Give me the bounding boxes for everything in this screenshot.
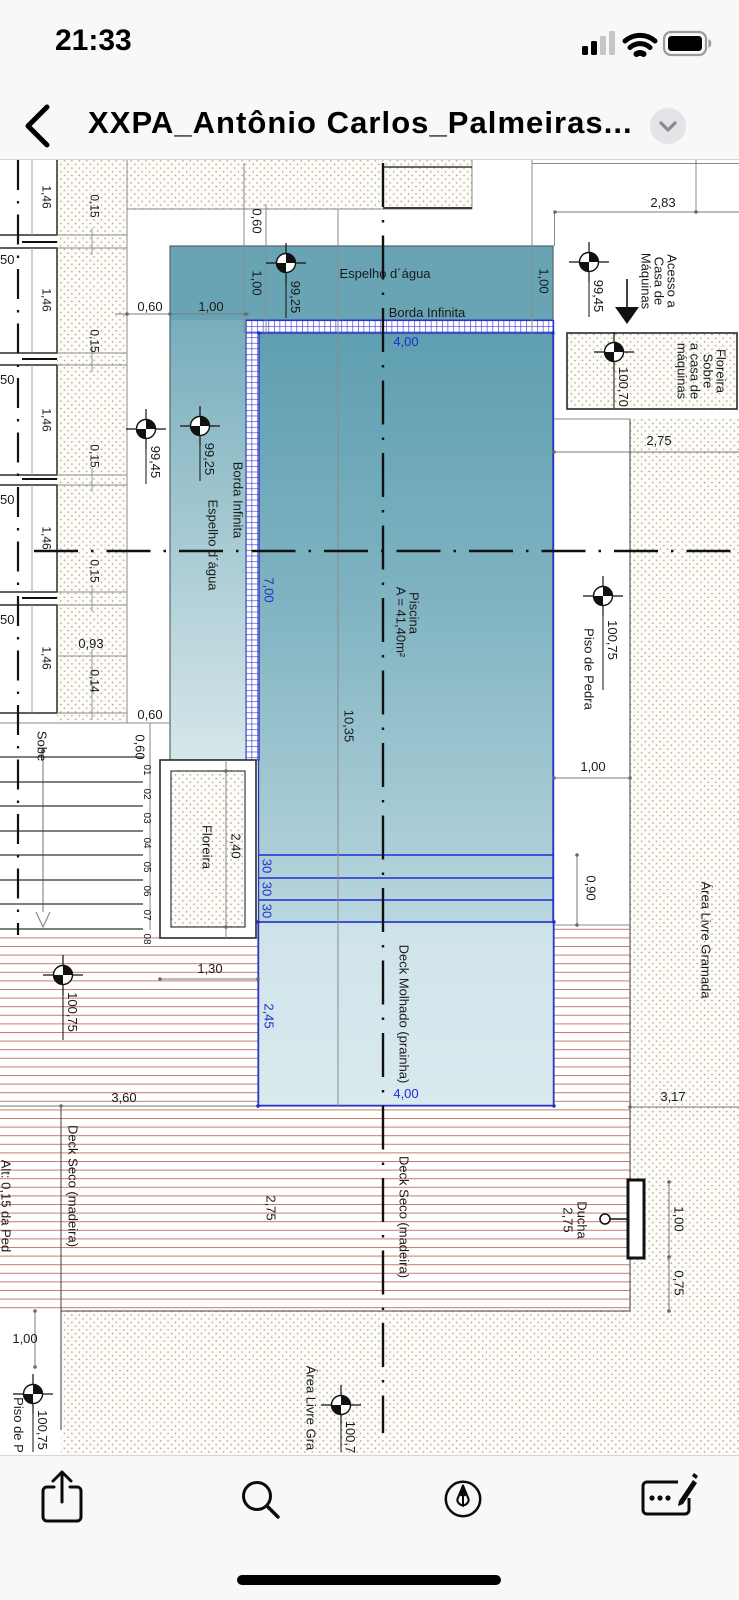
svg-text:Ducha: Ducha	[575, 1201, 590, 1239]
svg-text:30: 30	[260, 882, 275, 896]
svg-text:07: 07	[141, 909, 152, 921]
svg-text:1,46: 1,46	[40, 526, 54, 550]
svg-text:2,83: 2,83	[650, 195, 675, 210]
svg-text:Borda Infinita: Borda Infinita	[389, 305, 466, 320]
svg-text:Deck Seco (madeira): Deck Seco (madeira)	[397, 1156, 412, 1278]
svg-text:máquinas: máquinas	[675, 343, 690, 400]
svg-text:1,00: 1,00	[537, 268, 552, 293]
svg-text:2,45: 2,45	[262, 1003, 277, 1028]
svg-text:1,00: 1,00	[198, 299, 223, 314]
svg-text:0,15: 0,15	[88, 194, 102, 218]
svg-text:4,00: 4,00	[393, 1086, 418, 1101]
svg-text:10,35: 10,35	[342, 710, 357, 743]
svg-text:Piso de P: Piso de P	[11, 1397, 26, 1453]
svg-text:99,25: 99,25	[288, 281, 303, 314]
svg-text:Piso de Pedra: Piso de Pedra	[582, 628, 597, 710]
svg-text:2,75: 2,75	[646, 433, 671, 448]
svg-text:Espelho d´água: Espelho d´água	[206, 499, 221, 591]
svg-text:3,60: 3,60	[111, 1090, 136, 1105]
svg-text:01: 01	[141, 764, 152, 776]
svg-text:A = 41,40m²: A = 41,40m²	[394, 587, 409, 658]
svg-text:4,00: 4,00	[393, 334, 418, 349]
svg-text:7,00: 7,00	[262, 577, 277, 602]
svg-text:100,75: 100,75	[65, 992, 80, 1032]
svg-text:Área Livre Gra: Área Livre Gra	[304, 1366, 319, 1451]
svg-text:Borda Infinita: Borda Infinita	[231, 462, 246, 539]
svg-text:05: 05	[141, 861, 152, 873]
svg-text:0,60: 0,60	[133, 734, 148, 759]
svg-text:3,17: 3,17	[660, 1089, 685, 1104]
svg-text:0,75: 0,75	[672, 1270, 687, 1295]
svg-text:1,46: 1,46	[40, 185, 54, 209]
svg-text:08: 08	[141, 933, 152, 945]
svg-text:30: 30	[260, 859, 275, 873]
svg-text:0,60: 0,60	[137, 299, 162, 314]
svg-text:1,00: 1,00	[12, 1331, 37, 1346]
svg-text:0,60: 0,60	[250, 208, 265, 233]
svg-text:1,46: 1,46	[40, 408, 54, 432]
svg-text:100,70: 100,70	[616, 367, 631, 407]
svg-text:Deck Molhado (prainha): Deck Molhado (prainha)	[397, 945, 412, 1084]
svg-text:04: 04	[141, 837, 152, 849]
svg-text:99,25: 99,25	[202, 443, 217, 476]
svg-text:30: 30	[260, 904, 275, 918]
svg-text:0,15: 0,15	[88, 329, 102, 353]
svg-text:06: 06	[141, 885, 152, 897]
svg-text:Deck Seco (madeira): Deck Seco (madeira)	[66, 1125, 81, 1247]
svg-text:Floreira: Floreira	[200, 825, 215, 870]
svg-text:99,45: 99,45	[591, 280, 606, 313]
svg-text:50: 50	[0, 372, 14, 387]
svg-text:Área Livre Gramada: Área Livre Gramada	[699, 881, 714, 999]
svg-text:0,15: 0,15	[88, 444, 102, 468]
svg-text:Alt: 0,15 da Ped: Alt: 0,15 da Ped	[0, 1160, 14, 1253]
svg-text:50: 50	[0, 252, 14, 267]
svg-text:50: 50	[0, 612, 14, 627]
svg-text:100,75: 100,75	[605, 620, 620, 660]
svg-text:99,45: 99,45	[148, 446, 163, 479]
svg-text:100,7: 100,7	[343, 1421, 358, 1454]
svg-text:1,00: 1,00	[672, 1206, 687, 1231]
svg-text:03: 03	[141, 812, 152, 824]
svg-text:Sobe: Sobe	[35, 731, 50, 761]
svg-text:0,15: 0,15	[88, 559, 102, 583]
svg-text:1,00: 1,00	[250, 270, 265, 295]
svg-text:Espelho d´água: Espelho d´água	[339, 266, 431, 281]
svg-text:100,75: 100,75	[35, 1410, 50, 1450]
svg-text:1,46: 1,46	[40, 646, 54, 670]
svg-text:1,46: 1,46	[40, 288, 54, 312]
svg-text:0,93: 0,93	[78, 636, 103, 651]
svg-text:50: 50	[0, 492, 14, 507]
svg-text:1,30: 1,30	[197, 961, 222, 976]
svg-text:2,75: 2,75	[561, 1207, 576, 1232]
svg-text:Máquinas: Máquinas	[639, 253, 654, 310]
svg-text:0,14: 0,14	[88, 669, 102, 693]
svg-text:02: 02	[141, 788, 152, 800]
svg-text:1,00: 1,00	[580, 759, 605, 774]
svg-text:2,40: 2,40	[229, 833, 244, 858]
svg-text:0,90: 0,90	[584, 875, 599, 900]
svg-text:2,75: 2,75	[264, 1195, 279, 1220]
svg-text:0,60: 0,60	[137, 707, 162, 722]
